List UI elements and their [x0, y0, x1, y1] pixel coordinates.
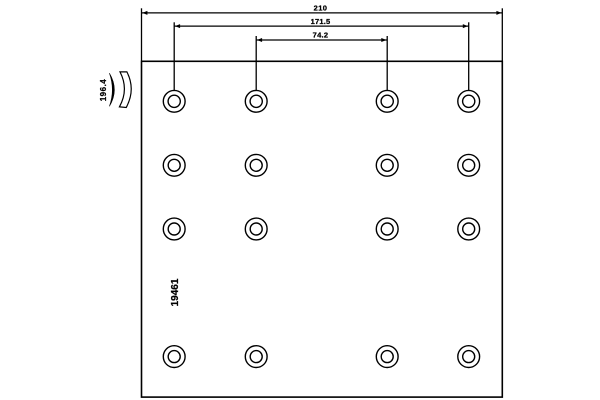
svg-text:210: 210: [314, 4, 328, 13]
svg-text:196.4: 196.4: [99, 79, 108, 102]
svg-text:171.5: 171.5: [311, 17, 331, 26]
svg-text:19461: 19461: [170, 278, 181, 306]
svg-text:74.2: 74.2: [313, 31, 329, 40]
